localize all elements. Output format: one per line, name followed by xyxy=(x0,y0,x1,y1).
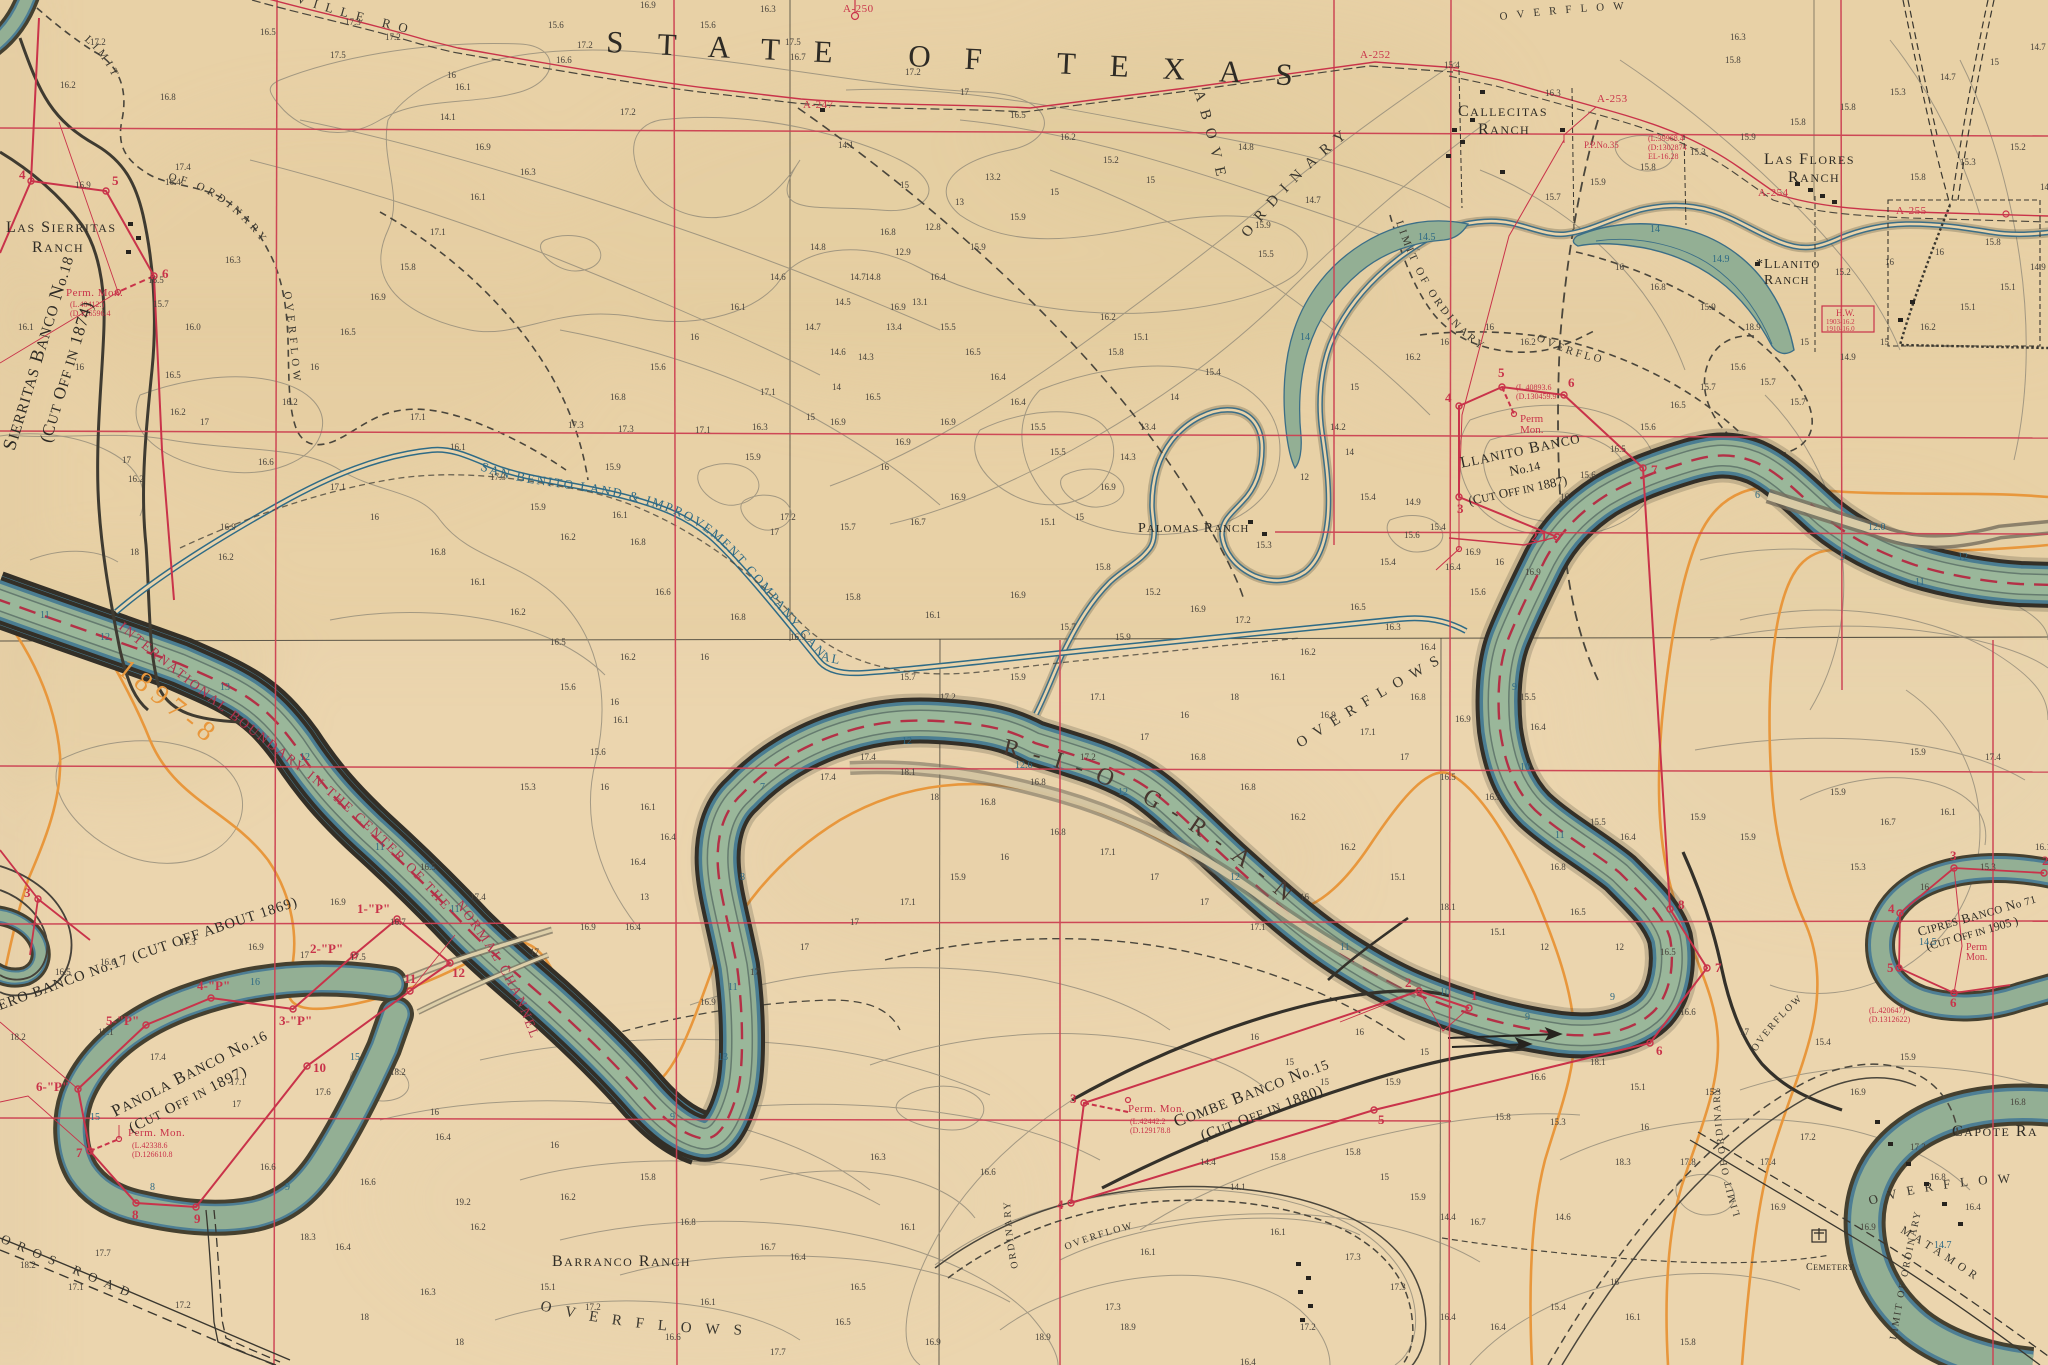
svg-text:16.5: 16.5 xyxy=(1570,907,1586,917)
svg-text:EL-16.28: EL-16.28 xyxy=(1648,152,1678,161)
svg-text:16.5: 16.5 xyxy=(1440,772,1456,782)
svg-text:15: 15 xyxy=(900,180,910,190)
svg-text:17: 17 xyxy=(1140,732,1150,742)
svg-text:15.7: 15.7 xyxy=(153,299,169,309)
svg-text:12.0: 12.0 xyxy=(1868,522,1886,533)
svg-text:14.8: 14.8 xyxy=(1238,142,1254,152)
svg-text:16.9: 16.9 xyxy=(1465,547,1481,557)
svg-text:17: 17 xyxy=(300,950,310,960)
svg-text:11: 11 xyxy=(1340,942,1350,953)
svg-text:16.5: 16.5 xyxy=(165,370,181,380)
svg-text:16.2: 16.2 xyxy=(282,397,298,407)
svg-text:16.3: 16.3 xyxy=(870,1152,886,1162)
svg-text:15.2: 15.2 xyxy=(1103,155,1119,165)
svg-text:16.9: 16.9 xyxy=(370,292,386,302)
svg-text:16: 16 xyxy=(310,362,320,372)
svg-text:15.4: 15.4 xyxy=(1550,1302,1566,1312)
svg-text:16.6: 16.6 xyxy=(1530,1072,1546,1082)
svg-text:16.1: 16.1 xyxy=(925,610,941,620)
svg-text:15.7: 15.7 xyxy=(1760,377,1776,387)
svg-text:16: 16 xyxy=(1885,257,1895,267)
svg-text:17.7: 17.7 xyxy=(770,1347,786,1357)
svg-text:15.4: 15.4 xyxy=(1815,1037,1831,1047)
svg-text:(L.42338.6: (L.42338.6 xyxy=(132,1141,168,1150)
svg-text:16.4: 16.4 xyxy=(435,1132,451,1142)
svg-text:10: 10 xyxy=(313,1060,326,1075)
svg-text:16.4: 16.4 xyxy=(1445,562,1461,572)
svg-text:15.9: 15.9 xyxy=(1740,132,1756,142)
svg-text:15.3: 15.3 xyxy=(1890,87,1906,97)
svg-text:15.1: 15.1 xyxy=(1490,927,1506,937)
svg-text:9: 9 xyxy=(670,1112,675,1123)
svg-text:16.7: 16.7 xyxy=(390,917,406,927)
svg-text:16.2: 16.2 xyxy=(560,1192,576,1202)
svg-text:7: 7 xyxy=(76,1145,83,1160)
svg-text:16: 16 xyxy=(1615,262,1625,272)
svg-text:16.4: 16.4 xyxy=(335,1242,351,1252)
svg-text:15.8: 15.8 xyxy=(1725,55,1741,65)
svg-text:16.6: 16.6 xyxy=(100,957,116,967)
svg-text:16.2: 16.2 xyxy=(128,474,144,484)
svg-text:6: 6 xyxy=(1755,490,1760,501)
svg-text:7: 7 xyxy=(1651,462,1658,477)
svg-text:17.1: 17.1 xyxy=(1100,847,1116,857)
svg-text:16: 16 xyxy=(1640,1122,1650,1132)
svg-text:15.5: 15.5 xyxy=(1520,692,1536,702)
svg-text:16.5: 16.5 xyxy=(1610,444,1626,454)
svg-text:14.9: 14.9 xyxy=(1405,497,1421,507)
svg-text:17.2: 17.2 xyxy=(585,1302,601,1312)
svg-text:(D.129178.8: (D.129178.8 xyxy=(1130,1126,1170,1135)
svg-text:15.8: 15.8 xyxy=(1790,117,1806,127)
svg-text:16.9: 16.9 xyxy=(75,180,91,190)
svg-text:17.4: 17.4 xyxy=(1985,752,2001,762)
svg-text:14.7: 14.7 xyxy=(850,272,866,282)
svg-text:15.6: 15.6 xyxy=(1730,362,1746,372)
svg-text:16.9: 16.9 xyxy=(475,142,491,152)
svg-text:16: 16 xyxy=(610,697,620,707)
svg-text:16.8: 16.8 xyxy=(630,537,646,547)
svg-text:14.7: 14.7 xyxy=(1940,72,1956,82)
svg-text:4: 4 xyxy=(19,167,26,182)
svg-text:14.9: 14.9 xyxy=(2030,262,2046,272)
svg-text:15.9: 15.9 xyxy=(745,452,761,462)
svg-text:17.2: 17.2 xyxy=(175,1300,191,1310)
svg-text:16.2: 16.2 xyxy=(1405,352,1421,362)
svg-text:15.3: 15.3 xyxy=(1550,1117,1566,1127)
svg-text:15.6: 15.6 xyxy=(590,747,606,757)
svg-text:15.6: 15.6 xyxy=(1404,530,1420,540)
svg-text:16.4: 16.4 xyxy=(1240,1357,1256,1365)
svg-text:16.2: 16.2 xyxy=(218,552,234,562)
svg-text:12: 12 xyxy=(452,965,465,980)
svg-text:16.8: 16.8 xyxy=(2010,1097,2026,1107)
svg-text:3-"P": 3-"P" xyxy=(279,1013,312,1028)
svg-text:16.6: 16.6 xyxy=(258,457,274,467)
svg-text:15.8: 15.8 xyxy=(1270,1152,1286,1162)
svg-text:2: 2 xyxy=(2042,853,2048,868)
svg-text:15.3: 15.3 xyxy=(1850,862,1866,872)
svg-text:14.2: 14.2 xyxy=(1330,422,1346,432)
svg-text:16.6: 16.6 xyxy=(260,1162,276,1172)
svg-text:18.2: 18.2 xyxy=(20,1260,36,1270)
svg-text:17.4: 17.4 xyxy=(470,892,486,902)
svg-text:15.3: 15.3 xyxy=(1256,540,1272,550)
svg-text:15.9: 15.9 xyxy=(1830,787,1846,797)
svg-text:15: 15 xyxy=(1320,1077,1330,1087)
svg-text:(L.40893.6: (L.40893.6 xyxy=(1516,383,1552,392)
svg-text:16.9: 16.9 xyxy=(700,997,716,1007)
svg-text:17: 17 xyxy=(750,967,760,977)
svg-text:16: 16 xyxy=(1610,1277,1620,1287)
svg-text:16.9: 16.9 xyxy=(790,632,806,642)
svg-text:17.1: 17.1 xyxy=(695,425,711,435)
svg-text:14.6: 14.6 xyxy=(770,272,786,282)
svg-text:18.1: 18.1 xyxy=(900,767,916,777)
svg-text:18.9: 18.9 xyxy=(1035,1332,1051,1342)
svg-text:15.7: 15.7 xyxy=(1545,192,1561,202)
svg-text:16.4: 16.4 xyxy=(660,832,676,842)
svg-text:14.5: 14.5 xyxy=(1919,937,1937,948)
svg-text:17.4: 17.4 xyxy=(150,1052,166,1062)
svg-text:16.2: 16.2 xyxy=(60,80,76,90)
svg-text:16.9: 16.9 xyxy=(1770,1202,1786,1212)
svg-text:15.8: 15.8 xyxy=(1345,1147,1361,1157)
svg-text:15.7: 15.7 xyxy=(840,522,856,532)
svg-text:16: 16 xyxy=(880,462,890,472)
svg-text:16.1: 16.1 xyxy=(1270,672,1286,682)
svg-text:18.9: 18.9 xyxy=(1745,322,1761,332)
svg-text:17.2: 17.2 xyxy=(577,40,593,50)
svg-text:5: 5 xyxy=(1887,960,1894,975)
svg-text:14.7: 14.7 xyxy=(2040,182,2048,192)
svg-text:8: 8 xyxy=(740,872,745,883)
svg-text:16.5: 16.5 xyxy=(1485,792,1501,802)
svg-text:17: 17 xyxy=(1400,752,1410,762)
svg-text:A-255: A-255 xyxy=(1896,205,1927,217)
svg-text:17: 17 xyxy=(1740,1027,1750,1037)
svg-text:15.8: 15.8 xyxy=(1640,162,1656,172)
svg-text:17: 17 xyxy=(960,87,970,97)
svg-text:16.5: 16.5 xyxy=(1350,602,1366,612)
svg-text:(D.130459.9: (D.130459.9 xyxy=(1516,392,1556,401)
svg-text:16.1: 16.1 xyxy=(730,302,746,312)
svg-text:16.5: 16.5 xyxy=(55,967,71,977)
svg-text:12: 12 xyxy=(1540,942,1549,952)
svg-text:16.9: 16.9 xyxy=(890,302,906,312)
svg-text:18: 18 xyxy=(1230,692,1240,702)
svg-text:15.6: 15.6 xyxy=(650,362,666,372)
svg-text:7: 7 xyxy=(1715,960,1722,975)
svg-text:15.9: 15.9 xyxy=(1910,747,1926,757)
svg-text:15.8: 15.8 xyxy=(1095,562,1111,572)
svg-text:14.8: 14.8 xyxy=(865,272,881,282)
svg-text:16.9: 16.9 xyxy=(580,922,596,932)
svg-text:5-"P": 5-"P" xyxy=(106,1013,139,1028)
svg-text:16: 16 xyxy=(447,70,457,80)
svg-text:(D:1302874: (D:1302874 xyxy=(1648,143,1687,152)
svg-text:14.7: 14.7 xyxy=(1305,195,1321,205)
svg-text:15.1: 15.1 xyxy=(540,1282,556,1292)
svg-text:16: 16 xyxy=(1250,1032,1260,1042)
svg-text:15: 15 xyxy=(1146,175,1156,185)
svg-text:17.2: 17.2 xyxy=(1235,615,1251,625)
svg-text:14.6: 14.6 xyxy=(1555,1212,1571,1222)
svg-text:17: 17 xyxy=(232,1099,242,1109)
svg-text:16.8: 16.8 xyxy=(160,92,176,102)
svg-text:14: 14 xyxy=(832,382,842,392)
svg-text:16.5: 16.5 xyxy=(148,275,164,285)
svg-text:15.8: 15.8 xyxy=(1985,237,2001,247)
svg-text:15.9: 15.9 xyxy=(950,872,966,882)
svg-text:P.P.No.35: P.P.No.35 xyxy=(1584,140,1619,150)
svg-text:17.2: 17.2 xyxy=(905,67,921,77)
svg-text:16.5: 16.5 xyxy=(850,1282,866,1292)
svg-text:14.9: 14.9 xyxy=(1840,352,1856,362)
svg-text:16.5: 16.5 xyxy=(1670,400,1686,410)
svg-text:CEMETERY: CEMETERY xyxy=(1806,1262,1854,1273)
svg-text:3: 3 xyxy=(1070,1091,1077,1106)
svg-text:CALLECITAS: CALLECITAS xyxy=(1458,103,1548,120)
svg-text:A-247: A-247 xyxy=(803,99,834,111)
svg-text:(D.1312622): (D.1312622) xyxy=(1869,1015,1910,1024)
svg-text:18.2: 18.2 xyxy=(10,1032,26,1042)
svg-text:14.7: 14.7 xyxy=(2030,42,2046,52)
svg-text:14: 14 xyxy=(1170,392,1180,402)
svg-text:16.2: 16.2 xyxy=(1060,132,1076,142)
svg-text:12: 12 xyxy=(100,632,110,643)
svg-text:16.4: 16.4 xyxy=(790,1252,806,1262)
svg-text:14: 14 xyxy=(1650,224,1660,235)
svg-text:*LLANITO: *LLANITO xyxy=(1756,257,1820,272)
svg-text:17.1: 17.1 xyxy=(1360,727,1376,737)
svg-text:16.2: 16.2 xyxy=(510,607,526,617)
svg-text:13: 13 xyxy=(220,682,230,693)
svg-text:17.4: 17.4 xyxy=(175,162,191,172)
svg-text:15.9: 15.9 xyxy=(1010,212,1026,222)
svg-text:16.3: 16.3 xyxy=(225,255,241,265)
svg-text:16.8: 16.8 xyxy=(730,612,746,622)
svg-text:16.4: 16.4 xyxy=(990,372,1006,382)
svg-text:16.1: 16.1 xyxy=(1140,1247,1156,1257)
svg-text:10: 10 xyxy=(1520,762,1530,773)
svg-text:16.3: 16.3 xyxy=(420,1287,436,1297)
svg-text:9: 9 xyxy=(1525,1012,1530,1023)
svg-text:16.2: 16.2 xyxy=(620,652,636,662)
svg-text:17.3: 17.3 xyxy=(568,420,584,430)
svg-text:16.1: 16.1 xyxy=(455,82,471,92)
svg-text:16.8: 16.8 xyxy=(430,547,446,557)
svg-text:16: 16 xyxy=(75,362,85,372)
svg-text:11: 11 xyxy=(450,904,460,915)
svg-text:16.9: 16.9 xyxy=(1525,567,1541,577)
svg-text:17.1: 17.1 xyxy=(330,482,346,492)
svg-text:16.5: 16.5 xyxy=(965,347,981,357)
svg-text:15.5: 15.5 xyxy=(940,322,956,332)
svg-text:17.5: 17.5 xyxy=(785,37,801,47)
svg-text:6: 6 xyxy=(1568,375,1575,390)
svg-text:16.5: 16.5 xyxy=(1660,947,1676,957)
svg-text:Mon.: Mon. xyxy=(1520,424,1544,436)
svg-text:17: 17 xyxy=(530,947,540,957)
svg-text:PALOMAS RANCH: PALOMAS RANCH xyxy=(1138,521,1249,536)
svg-text:16.8: 16.8 xyxy=(1410,692,1426,702)
svg-text:RANCH: RANCH xyxy=(1478,121,1530,138)
svg-text:15.3: 15.3 xyxy=(1705,1087,1721,1097)
svg-text:13: 13 xyxy=(955,197,965,207)
svg-text:15.2: 15.2 xyxy=(1835,267,1851,277)
svg-text:5: 5 xyxy=(1378,1112,1385,1127)
svg-text:12: 12 xyxy=(1118,787,1128,798)
svg-text:16.9: 16.9 xyxy=(1010,590,1026,600)
svg-text:16.9: 16.9 xyxy=(1320,710,1336,720)
svg-text:16.7: 16.7 xyxy=(910,517,926,527)
svg-text:16.8: 16.8 xyxy=(980,797,996,807)
svg-text:16: 16 xyxy=(1440,337,1450,347)
svg-text:16.8: 16.8 xyxy=(1650,282,1666,292)
svg-text:4: 4 xyxy=(1057,1197,1064,1212)
svg-text:16.8: 16.8 xyxy=(680,1217,696,1227)
svg-text:15.8: 15.8 xyxy=(400,262,416,272)
svg-text:15.8: 15.8 xyxy=(1840,102,1856,112)
svg-text:12: 12 xyxy=(1230,872,1240,883)
svg-text:17: 17 xyxy=(1200,897,1210,907)
svg-text:16.7: 16.7 xyxy=(1470,1217,1486,1227)
svg-text:14.1: 14.1 xyxy=(440,112,456,122)
svg-text:15.9: 15.9 xyxy=(1385,1077,1401,1087)
svg-text:16: 16 xyxy=(1000,852,1010,862)
svg-text:17.2: 17.2 xyxy=(1080,752,1096,762)
svg-text:16.4: 16.4 xyxy=(1010,397,1026,407)
svg-text:16.9: 16.9 xyxy=(1850,1087,1866,1097)
svg-text:4-"P": 4-"P" xyxy=(197,978,230,993)
svg-text:15: 15 xyxy=(806,412,816,422)
svg-text:16.1: 16.1 xyxy=(1625,1312,1641,1322)
svg-text:14.5: 14.5 xyxy=(1418,232,1436,243)
svg-text:16.1: 16.1 xyxy=(1270,1227,1286,1237)
svg-text:16: 16 xyxy=(690,332,700,342)
svg-text:15.2: 15.2 xyxy=(1145,587,1161,597)
svg-text:16.3: 16.3 xyxy=(1385,622,1401,632)
svg-text:16.1: 16.1 xyxy=(700,1297,716,1307)
svg-text:16: 16 xyxy=(1935,247,1945,257)
svg-text:17.1: 17.1 xyxy=(1090,692,1106,702)
svg-text:4: 4 xyxy=(1445,390,1452,405)
svg-text:17.1: 17.1 xyxy=(410,412,426,422)
svg-text:18.3: 18.3 xyxy=(300,1232,316,1242)
svg-text:15.8: 15.8 xyxy=(1108,347,1124,357)
svg-text:15.8: 15.8 xyxy=(640,1172,656,1182)
svg-text:16.7: 16.7 xyxy=(760,1242,776,1252)
svg-text:9: 9 xyxy=(1840,552,1845,563)
svg-text:1910-16.0: 1910-16.0 xyxy=(1826,325,1855,333)
svg-text:16.2: 16.2 xyxy=(170,407,186,417)
svg-text:18.1: 18.1 xyxy=(1590,1057,1606,1067)
svg-text:17.2: 17.2 xyxy=(620,107,636,117)
svg-text:16.9: 16.9 xyxy=(640,0,656,10)
svg-text:17.2: 17.2 xyxy=(385,32,401,42)
svg-text:7: 7 xyxy=(760,782,765,793)
svg-text:15: 15 xyxy=(1800,337,1810,347)
svg-text:(D.126610.8: (D.126610.8 xyxy=(132,1150,172,1159)
svg-text:15.3: 15.3 xyxy=(1980,862,1996,872)
svg-text:18: 18 xyxy=(360,1312,370,1322)
svg-text:RANCH: RANCH xyxy=(32,239,84,256)
svg-text:14.3: 14.3 xyxy=(1120,452,1136,462)
svg-text:16: 16 xyxy=(370,512,380,522)
svg-text:15.5: 15.5 xyxy=(1258,249,1274,259)
svg-text:LAS FLORES: LAS FLORES xyxy=(1764,151,1855,168)
svg-text:16.6: 16.6 xyxy=(665,1332,681,1342)
svg-text:15.9: 15.9 xyxy=(1740,832,1756,842)
svg-text:15.6: 15.6 xyxy=(1580,470,1596,480)
svg-text:17.3: 17.3 xyxy=(1390,1282,1406,1292)
svg-text:15.9: 15.9 xyxy=(1690,812,1706,822)
svg-text:15.6: 15.6 xyxy=(548,20,564,30)
svg-text:(L.42442.2: (L.42442.2 xyxy=(1130,1117,1166,1126)
svg-text:5: 5 xyxy=(112,173,119,188)
svg-text:16.4: 16.4 xyxy=(165,177,181,187)
svg-text:15.8: 15.8 xyxy=(1680,1337,1696,1347)
svg-text:16.3: 16.3 xyxy=(752,422,768,432)
svg-text:13: 13 xyxy=(640,892,650,902)
svg-text:16: 16 xyxy=(1485,322,1495,332)
svg-text:16.2: 16.2 xyxy=(1300,647,1316,657)
svg-text:9: 9 xyxy=(285,1182,290,1193)
svg-text:16.6: 16.6 xyxy=(556,55,572,65)
svg-text:16.3: 16.3 xyxy=(520,167,536,177)
svg-text:17.1: 17.1 xyxy=(900,897,916,907)
svg-text:16.5: 16.5 xyxy=(1010,110,1026,120)
svg-text:16.8: 16.8 xyxy=(1190,752,1206,762)
svg-text:17.2: 17.2 xyxy=(1300,1322,1316,1332)
svg-text:16.1: 16.1 xyxy=(2035,842,2048,852)
svg-text:17.6: 17.6 xyxy=(315,1087,331,1097)
svg-text:16.4: 16.4 xyxy=(1420,642,1436,652)
svg-text:17: 17 xyxy=(122,455,132,465)
svg-text:16.2: 16.2 xyxy=(1520,337,1536,347)
svg-text:16.9: 16.9 xyxy=(1190,604,1206,614)
svg-text:15.9: 15.9 xyxy=(1590,177,1606,187)
svg-text:15.8: 15.8 xyxy=(845,592,861,602)
svg-text:12.8: 12.8 xyxy=(925,222,941,232)
svg-text:16.4: 16.4 xyxy=(1620,832,1636,842)
svg-text:17.3: 17.3 xyxy=(1105,1302,1121,1312)
svg-text:16.2: 16.2 xyxy=(1920,322,1936,332)
svg-text:(L.420647): (L.420647) xyxy=(1869,1006,1906,1015)
svg-text:13: 13 xyxy=(718,1052,728,1063)
svg-text:16.1: 16.1 xyxy=(470,577,486,587)
svg-text:17: 17 xyxy=(200,417,210,427)
svg-text:17.1: 17.1 xyxy=(1250,922,1266,932)
svg-text:18.3: 18.3 xyxy=(1615,1157,1631,1167)
svg-text:15.9: 15.9 xyxy=(605,462,621,472)
svg-text:15.9: 15.9 xyxy=(1700,302,1716,312)
svg-text:17.2: 17.2 xyxy=(780,512,796,522)
svg-text:15: 15 xyxy=(1380,1172,1390,1182)
svg-text:16.8: 16.8 xyxy=(1550,862,1566,872)
svg-text:11: 11 xyxy=(375,842,385,853)
svg-text:8: 8 xyxy=(1678,897,1685,912)
svg-text:15.8: 15.8 xyxy=(1495,1112,1511,1122)
svg-text:16.4: 16.4 xyxy=(1530,722,1546,732)
svg-text:12: 12 xyxy=(1615,942,1624,952)
svg-text:15.9: 15.9 xyxy=(1410,1192,1426,1202)
svg-text:H.W.: H.W. xyxy=(1836,308,1855,318)
svg-text:17: 17 xyxy=(850,917,860,927)
svg-text:16: 16 xyxy=(600,782,610,792)
svg-text:17.1: 17.1 xyxy=(230,1077,246,1087)
